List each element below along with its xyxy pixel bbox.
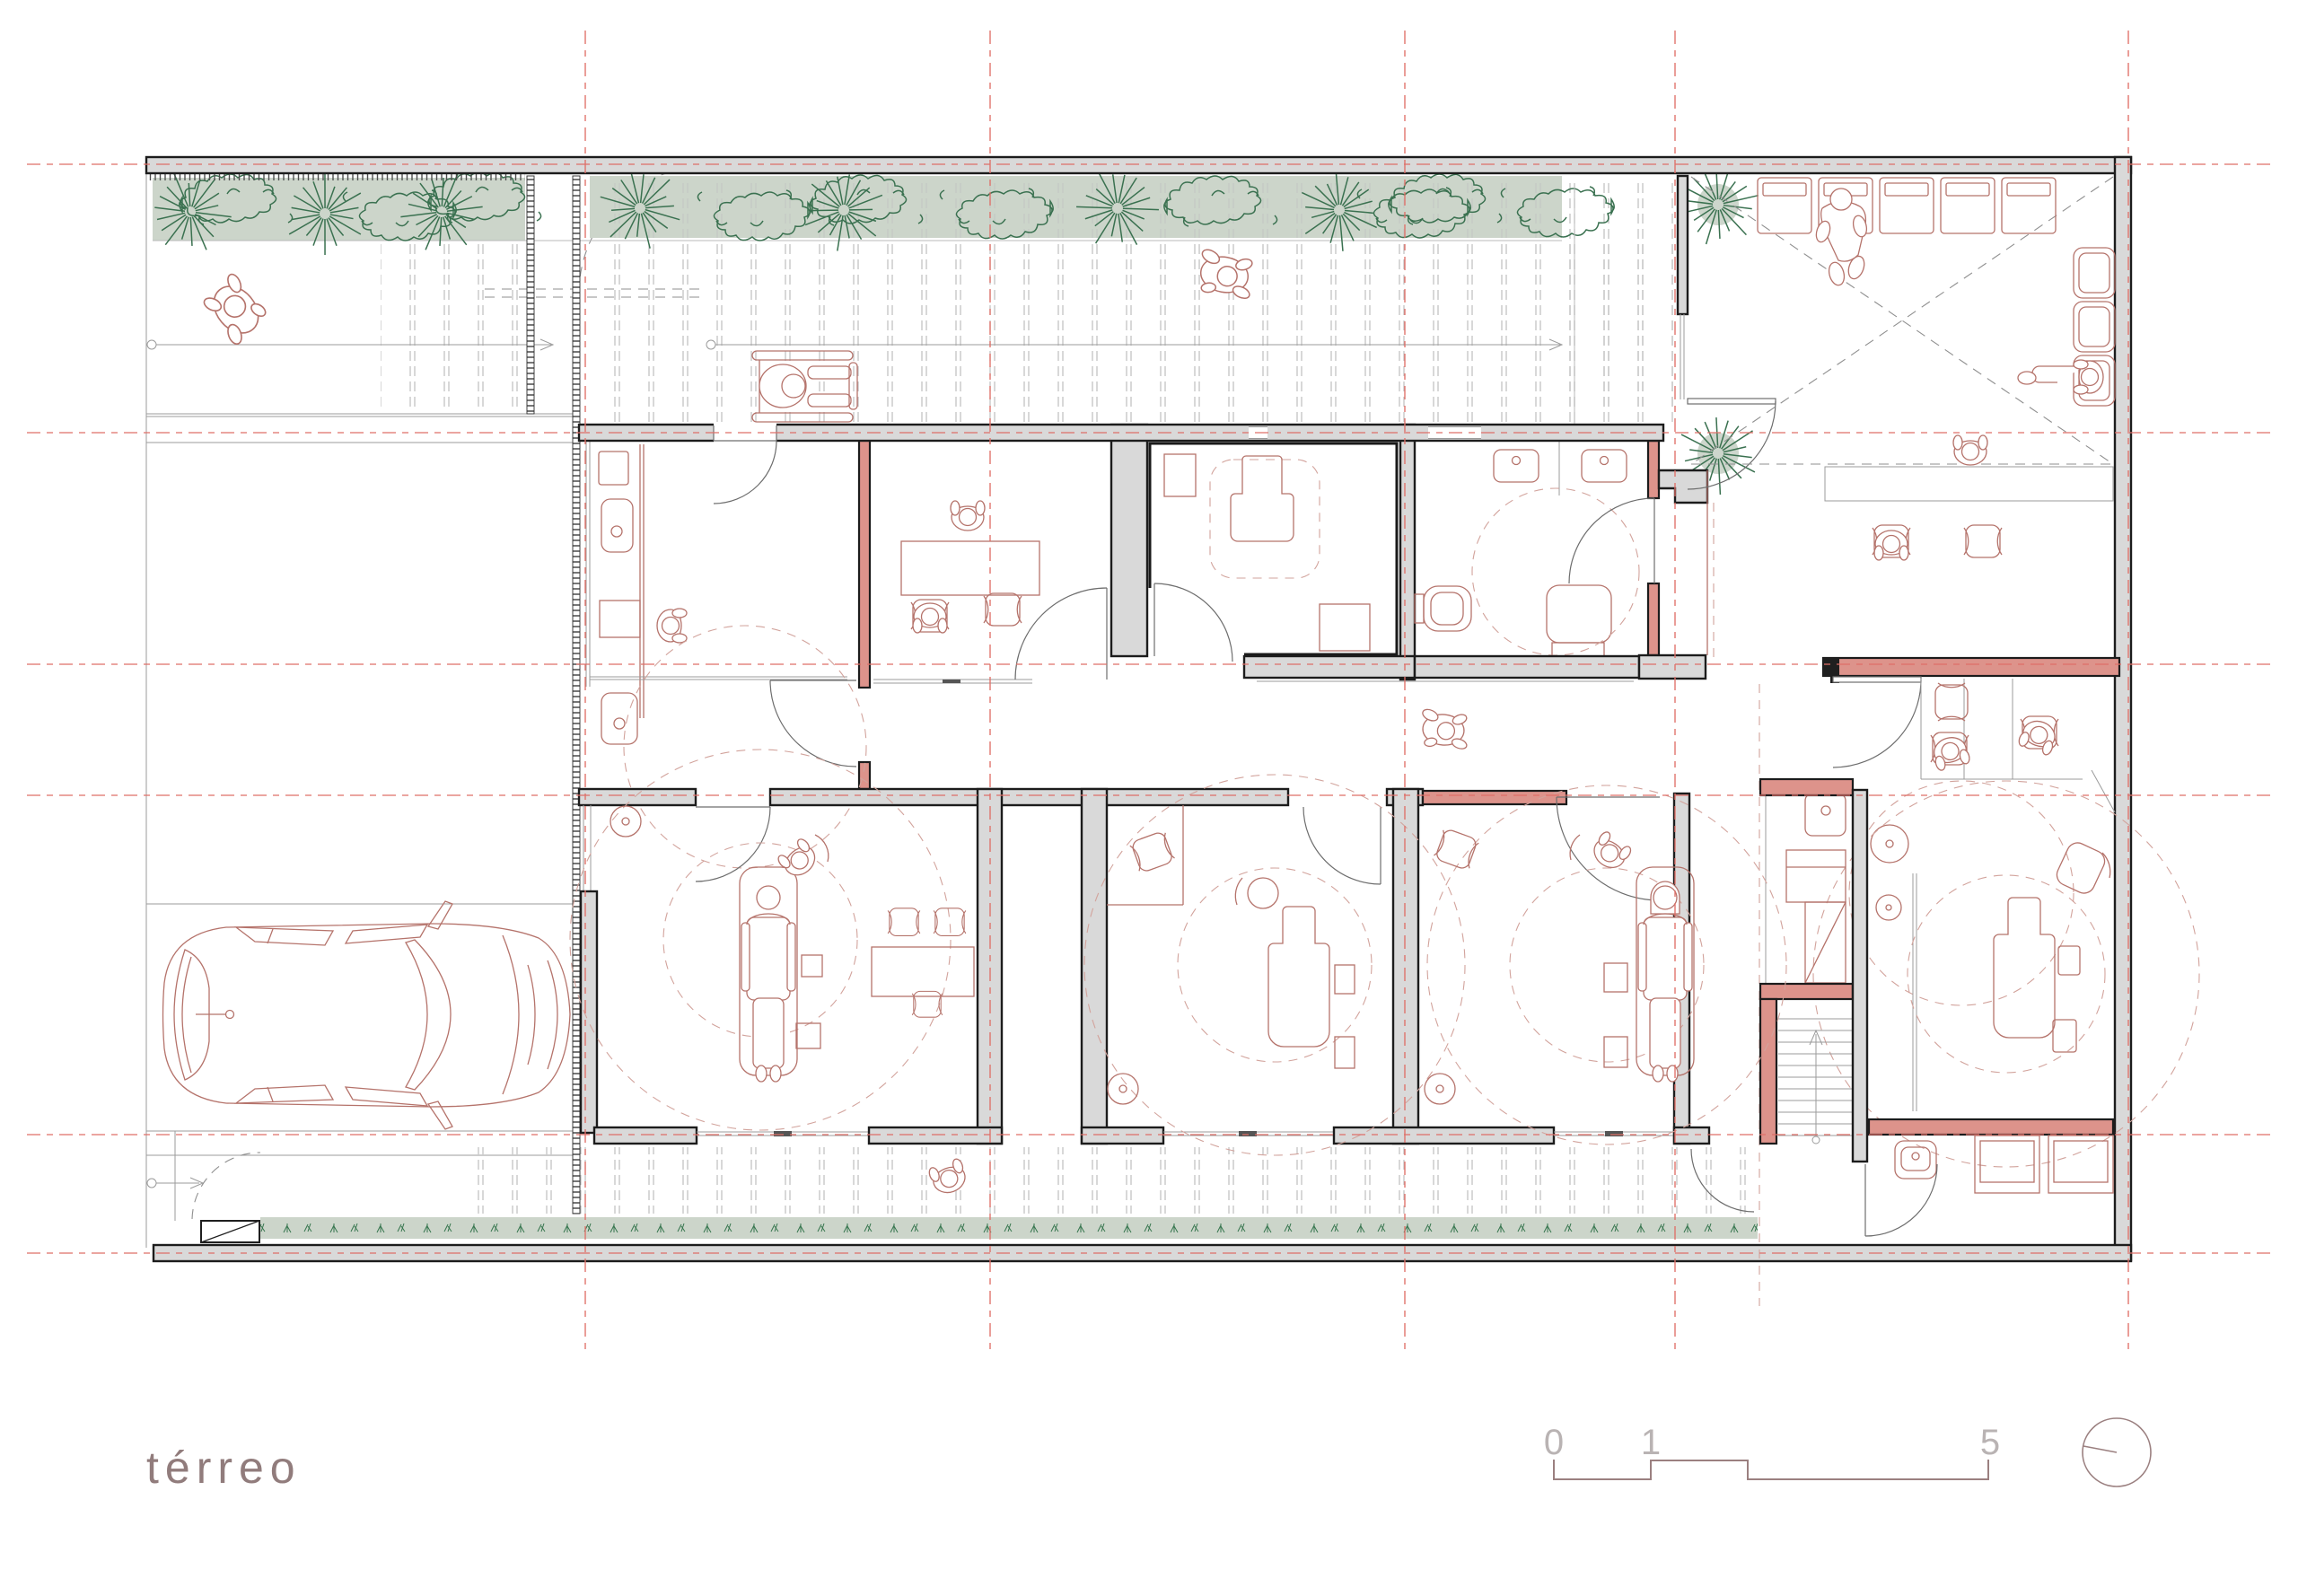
svg-text:0: 0 xyxy=(1544,1423,1564,1462)
svg-text:térreo: térreo xyxy=(146,1443,302,1493)
svg-text:5: 5 xyxy=(1980,1423,2000,1462)
svg-text:1: 1 xyxy=(1641,1423,1661,1462)
